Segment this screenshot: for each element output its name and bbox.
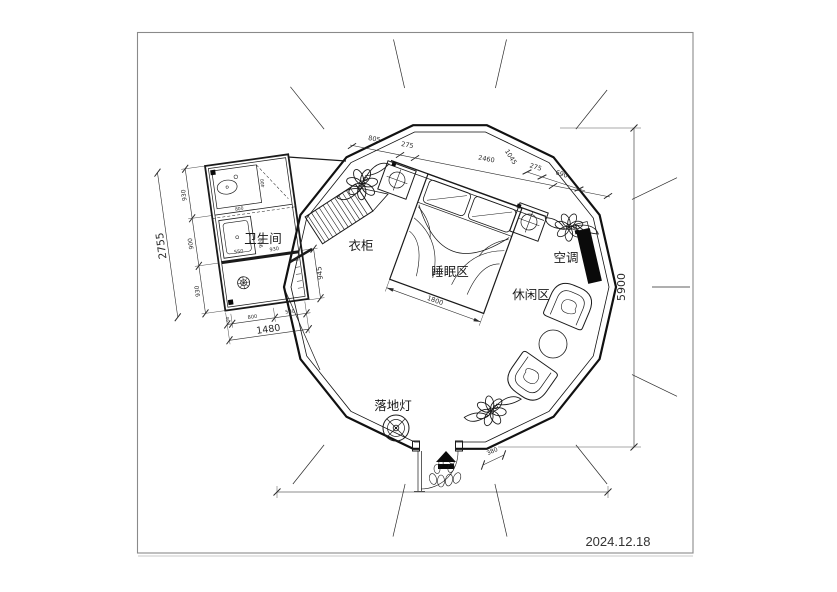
- dim-left-total: 2755: [154, 232, 170, 260]
- drawing-date: 2024.12.18: [585, 534, 650, 549]
- dim-left-seg1: 930: [180, 189, 189, 201]
- dim-bottom-total: 1480: [256, 323, 281, 337]
- right-dimension-chain: 275 690: [523, 161, 585, 193]
- dim-bottom-seg2: 800: [247, 314, 257, 321]
- dim-vanity-width: 800: [235, 206, 244, 213]
- dim-bottom-seg1: 90: [225, 316, 231, 322]
- axis-ray: [290, 87, 324, 129]
- plant-icon: [464, 392, 522, 429]
- wardrobe-label: 衣柜: [348, 238, 373, 253]
- axis-ray: [576, 90, 607, 129]
- armchair: [543, 278, 597, 330]
- tent-structure: [284, 39, 690, 536]
- entrance-gap: [420, 440, 457, 451]
- floor-drain: [237, 276, 251, 290]
- dim-right-side: 945: [315, 266, 325, 280]
- bathroom-connector-wall: [288, 157, 346, 161]
- axis-ray: [495, 39, 506, 88]
- sink: [216, 179, 238, 196]
- axis-ray: [576, 445, 607, 484]
- wardrobe: [305, 172, 391, 243]
- bathroom-label: 卫生间: [244, 232, 282, 246]
- dim-overall-height: 5900: [615, 273, 628, 301]
- dim-left-seg3: 930: [194, 285, 203, 297]
- dim-top-2: 275: [401, 140, 415, 150]
- dim-top-1: 805: [368, 134, 382, 144]
- tent-inner-wall: [291, 132, 609, 442]
- dim-inner-width: 930: [269, 246, 279, 253]
- dim-left-seg2: 900: [187, 237, 196, 249]
- dim-shower-width: 550: [234, 248, 244, 255]
- axis-ray: [632, 178, 677, 200]
- bathroom: 800 400 550 930 900 930 90: [145, 148, 332, 352]
- dim-vanity-depth: 400: [259, 178, 266, 187]
- axis-ray: [394, 39, 405, 88]
- floor-lamp-symbol: [383, 415, 409, 441]
- vanity: 800 400: [210, 160, 289, 215]
- bed: 1800: [385, 174, 522, 326]
- dim-top-4: 1045: [503, 148, 519, 166]
- armchair: [502, 350, 559, 406]
- top-dimension-chain: 805 275 2460 1045: [348, 134, 612, 200]
- floor-plan-canvas: 800 400 550 930 900 930 90: [0, 0, 837, 592]
- nightstand: [510, 203, 548, 241]
- junction-extension-line: [285, 290, 320, 370]
- dim-right-1: 275: [528, 161, 542, 172]
- door-swing-arc: [421, 451, 458, 489]
- ground-line: [274, 486, 612, 498]
- sleeping-area-label: 睡眠区: [431, 265, 469, 279]
- axis-ray: [632, 375, 677, 397]
- faucet: [234, 175, 238, 179]
- leisure-area-label: 休闲区: [512, 288, 550, 302]
- floor-plan-page: 800 400 550 930 900 930 90: [0, 0, 837, 592]
- shoes: [428, 460, 462, 487]
- axis-ray: [293, 445, 324, 484]
- dim-right-2: 690: [554, 168, 568, 179]
- ac-label: 空调: [553, 251, 578, 265]
- floor-lamp-label: 落地灯: [374, 399, 412, 413]
- dim-top-3: 2460: [477, 154, 495, 165]
- drawing-frame: [138, 33, 694, 554]
- side-table: [539, 330, 567, 358]
